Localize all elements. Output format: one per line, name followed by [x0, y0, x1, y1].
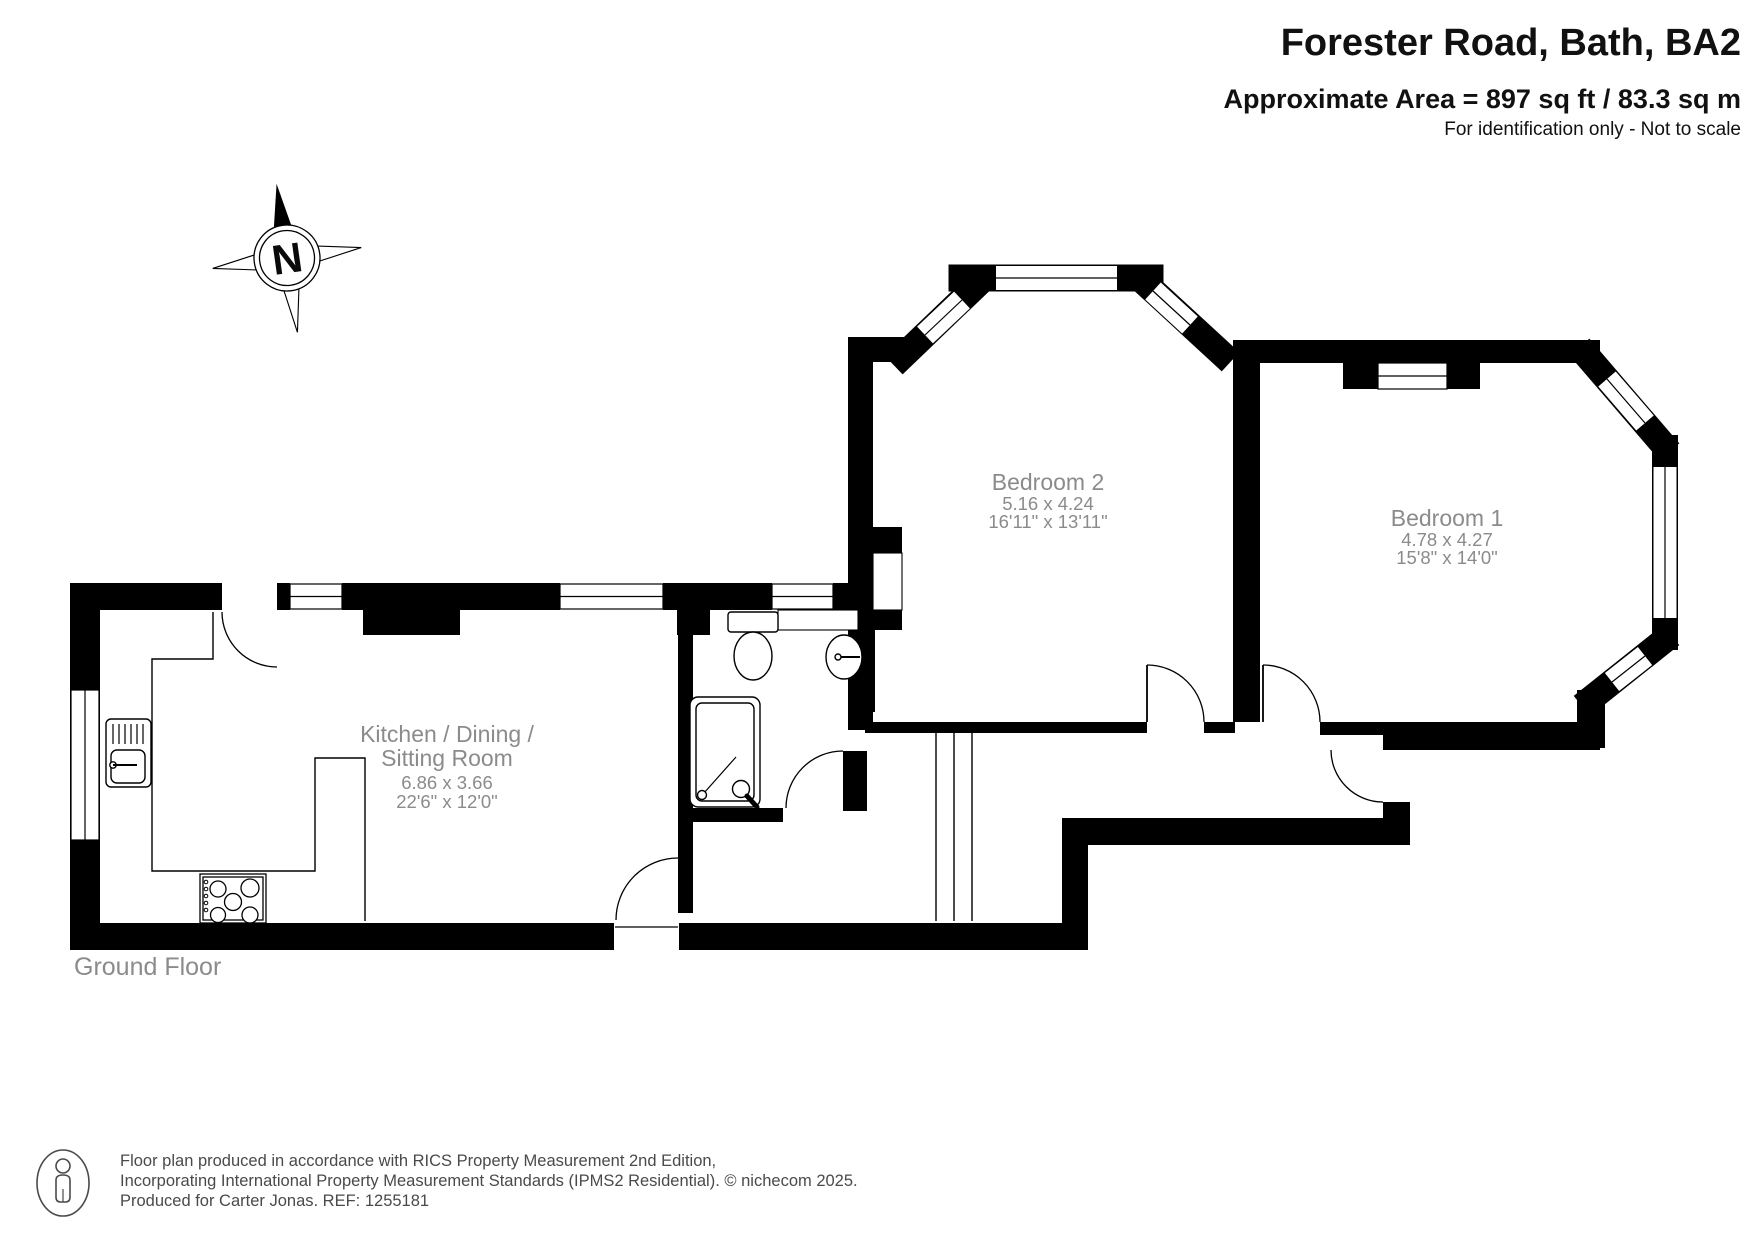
compass-north-label: N [269, 233, 306, 284]
person-icon [37, 1150, 89, 1216]
compass-rose: N [202, 173, 371, 342]
bedroom1-label: Bedroom 1 [1391, 505, 1504, 531]
kitchen-label-line2: Sitting Room [381, 745, 513, 771]
bedroom2-dim-imperial: 16'11" x 13'11" [988, 511, 1107, 532]
shower [690, 697, 760, 807]
kitchen-label: Kitchen / Dining / [360, 721, 534, 747]
kitchen-dim-metric: 6.86 x 3.66 [401, 772, 493, 793]
bedroom1-bay-window [1588, 357, 1665, 698]
footer-disclaimer: Floor plan produced in accordance with R… [120, 1151, 858, 1211]
bedroom2-bay-window [903, 278, 1221, 356]
bathroom-door-arc [786, 751, 843, 808]
footer-line-2: Incorporating International Property Mea… [120, 1171, 858, 1191]
footer-line-1: Floor plan produced in accordance with R… [120, 1151, 858, 1171]
bedroom1-door-arc [1263, 665, 1320, 722]
floor-name: Ground Floor [74, 953, 221, 982]
floor-plan: N [0, 0, 1755, 1241]
kitchen-hob [200, 874, 266, 923]
bedroom1-dim-imperial: 15'8" x 14'0" [1396, 547, 1497, 568]
bedroom2-label: Bedroom 2 [992, 469, 1105, 495]
bedroom2-door-arc [1147, 665, 1204, 722]
wash-basin [826, 635, 862, 679]
footer-line-3: Produced for Carter Jonas. REF: 1255181 [120, 1191, 858, 1211]
kitchen-dim-imperial: 22'6" x 12'0" [396, 791, 497, 812]
toilet [728, 612, 778, 680]
kitchen-sink [106, 719, 151, 787]
entrance-steps [936, 733, 972, 921]
kitchen-door-arc [222, 612, 277, 667]
hall-door-arc [1331, 750, 1383, 802]
entrance-door-arc [616, 858, 678, 920]
